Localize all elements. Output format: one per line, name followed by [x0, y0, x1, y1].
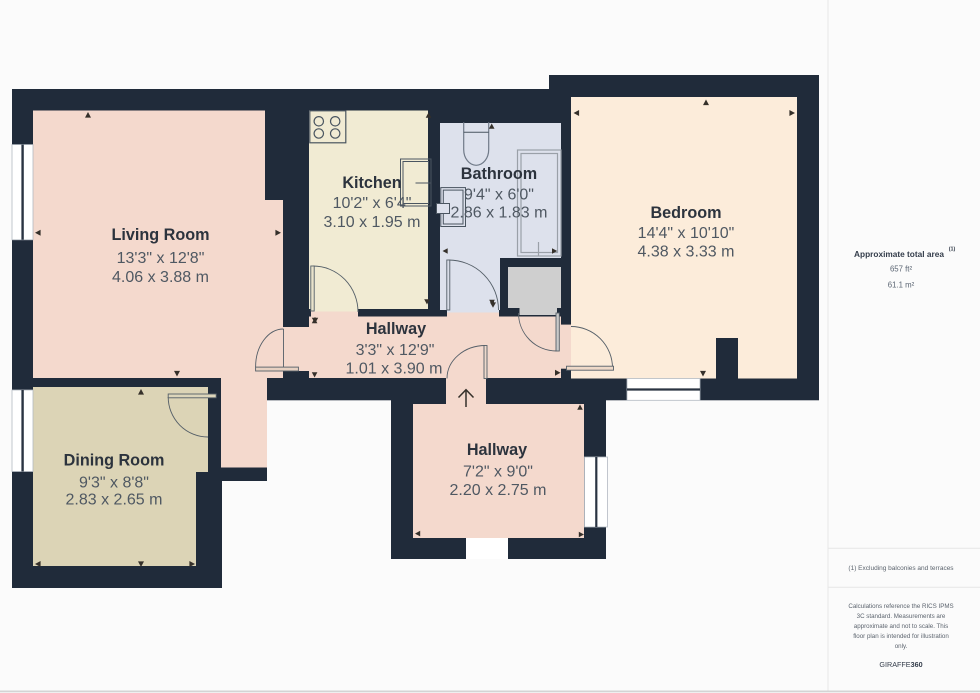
svg-text:Bedroom: Bedroom	[650, 204, 721, 222]
svg-text:3'3" x 12'9": 3'3" x 12'9"	[356, 342, 435, 359]
svg-text:13'3" x 12'8": 13'3" x 12'8"	[117, 250, 205, 267]
svg-text:2.83 x 2.65 m: 2.83 x 2.65 m	[66, 492, 163, 509]
svg-text:9'4" x 6'0": 9'4" x 6'0"	[464, 187, 534, 204]
svg-text:floor plan is intended for ill: floor plan is intended for illustration	[853, 633, 949, 640]
svg-text:approximate and not to scale.: approximate and not to scale. This	[854, 623, 948, 630]
svg-text:Hallway: Hallway	[467, 441, 527, 459]
svg-text:(1): (1)	[949, 247, 956, 253]
svg-text:only.: only.	[895, 643, 908, 650]
svg-text:2.86 x 1.83 m: 2.86 x 1.83 m	[451, 205, 548, 222]
svg-text:4.06 x 3.88 m: 4.06 x 3.88 m	[112, 269, 209, 286]
svg-text:657 ft²: 657 ft²	[890, 265, 913, 274]
svg-text:Dining Room: Dining Room	[64, 452, 165, 470]
svg-text:Hallway: Hallway	[366, 320, 426, 338]
svg-text:4.38 x 3.33 m: 4.38 x 3.33 m	[638, 244, 735, 261]
svg-text:7'2" x 9'0": 7'2" x 9'0"	[463, 464, 533, 481]
svg-text:Kitchen: Kitchen	[342, 174, 401, 192]
svg-text:3.10 x 1.95 m: 3.10 x 1.95 m	[324, 214, 421, 231]
svg-text:Living Room: Living Room	[111, 226, 209, 244]
svg-text:GIRAFFE360: GIRAFFE360	[879, 660, 922, 669]
svg-text:(1) Excluding balconies and te: (1) Excluding balconies and terraces	[848, 565, 954, 572]
svg-text:Bathroom: Bathroom	[461, 165, 537, 183]
svg-text:2.20 x 2.75 m: 2.20 x 2.75 m	[450, 482, 547, 499]
svg-text:10'2" x 6'4": 10'2" x 6'4"	[333, 195, 412, 212]
svg-text:14'4" x 10'10": 14'4" x 10'10"	[638, 225, 735, 242]
svg-text:1.01 x 3.90 m: 1.01 x 3.90 m	[346, 361, 443, 378]
svg-text:Calculations reference the RIC: Calculations reference the RICS IPMS	[848, 603, 953, 610]
svg-text:3C standard. Measurements are: 3C standard. Measurements are	[857, 613, 946, 620]
svg-text:Approximate total area: Approximate total area	[854, 249, 944, 259]
svg-text:61.1 m²: 61.1 m²	[888, 281, 915, 290]
svg-text:9'3" x 8'8": 9'3" x 8'8"	[79, 475, 149, 492]
